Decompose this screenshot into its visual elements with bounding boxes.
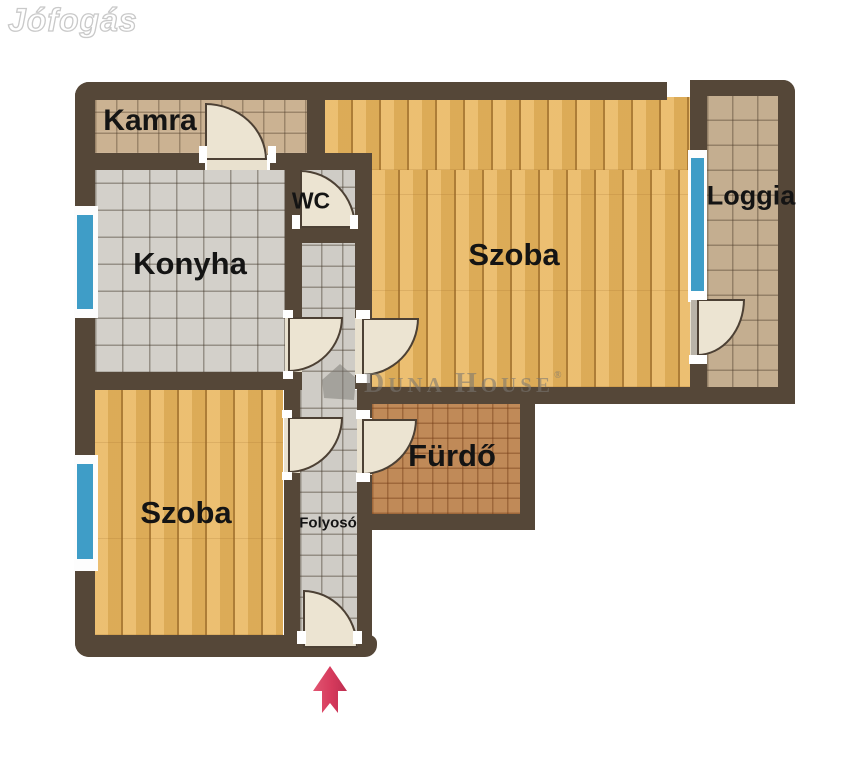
szoba1-floor [372, 170, 690, 387]
jamb [268, 146, 276, 163]
room-label-wc: WC [292, 188, 330, 215]
jamb [356, 473, 370, 482]
duna-house-watermark: DUNA HOUSE® [364, 368, 561, 400]
room-label-furdo: Fürdő [408, 438, 496, 474]
wall-szoba1-loggia-upper [690, 88, 707, 158]
room-label-kamra: Kamra [103, 104, 196, 138]
jamb [353, 631, 362, 644]
wall-kamra-bottom-left [95, 153, 205, 170]
entrance-arrow-icon [311, 664, 351, 716]
room-label-loggia: Loggia [707, 181, 796, 212]
duna-house-icon [318, 362, 358, 402]
szoba2-window [77, 464, 93, 559]
wall-furdo-right [520, 404, 535, 530]
jamb [689, 291, 707, 300]
registered-mark: ® [554, 370, 561, 381]
wall-szoba2-hall-lower [284, 473, 300, 657]
wall-hall-right-lower [357, 530, 372, 640]
loggia-floor [707, 96, 778, 396]
jamb [350, 215, 358, 229]
wall-loggia-right [778, 80, 795, 404]
room-label-konyha: Konyha [133, 246, 247, 282]
konyha-window [77, 215, 93, 309]
floorplan-canvas: Kamra Konyha WC Szoba Loggia Fürdő Szoba… [0, 0, 856, 768]
jamb [199, 146, 207, 163]
jamb [689, 355, 707, 364]
wall-szoba1-loggia-lower [690, 358, 707, 404]
duna-house-text: D [364, 368, 388, 399]
jamb [282, 410, 292, 418]
wall-furdo-bottom [357, 514, 535, 530]
wall-hall-right-upper [355, 153, 372, 318]
room-label-folyoso: Folyosó [299, 515, 357, 532]
jamb [356, 410, 370, 419]
jamb [283, 310, 293, 318]
room-label-szoba1: Szoba [468, 237, 559, 273]
jamb [283, 371, 293, 379]
wall-konyha-bottom [75, 372, 302, 390]
loggia-window [691, 158, 704, 295]
wall-top [75, 82, 667, 100]
wall-kamra-szoba-divider [307, 82, 325, 170]
room-label-szoba2: Szoba [140, 495, 231, 531]
jamb [356, 310, 370, 319]
jofogas-watermark: Jófogás [8, 2, 138, 39]
jamb [292, 215, 300, 229]
jamb [282, 472, 292, 480]
szoba1-floor-notch [325, 97, 690, 170]
jamb [297, 631, 306, 644]
